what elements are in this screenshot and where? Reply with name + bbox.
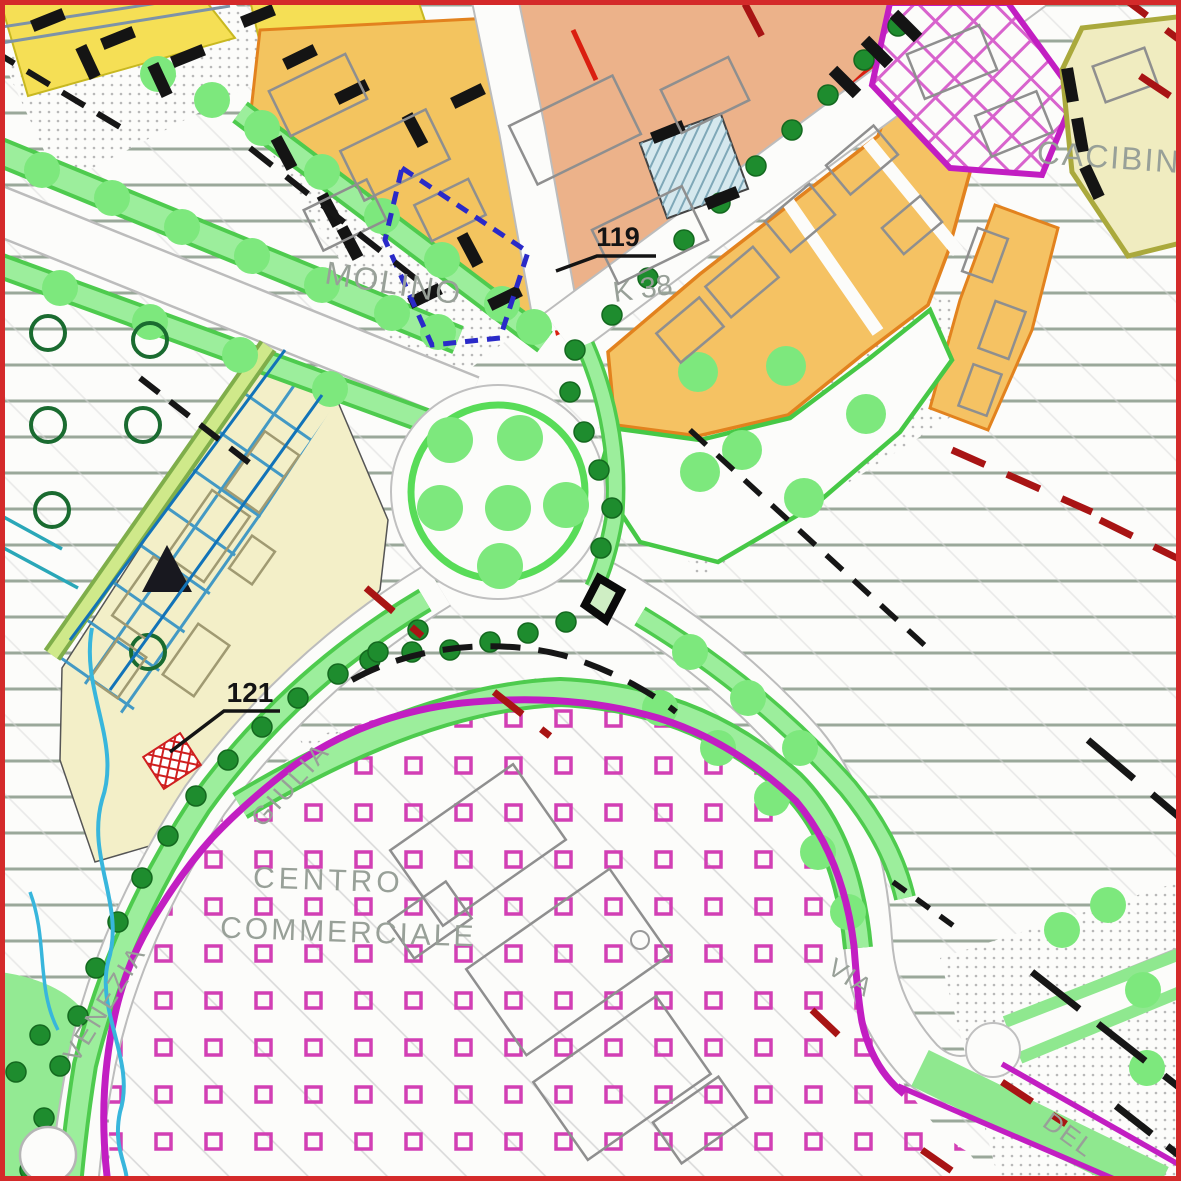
tree-icon (368, 642, 388, 662)
tree-canopy-icon (516, 309, 552, 345)
tree-icon (288, 688, 308, 708)
tree-icon (589, 460, 609, 480)
tree-canopy-icon (1090, 887, 1126, 923)
zoning-map: 119 121 K 38 MOLINO CACIBIN CENTRO COMME… (0, 0, 1181, 1181)
tree-icon (6, 1062, 26, 1082)
tree-canopy-icon (846, 394, 886, 434)
tree-icon (30, 1025, 50, 1045)
tree-canopy-icon (477, 543, 523, 589)
tree-icon (560, 382, 580, 402)
tree-canopy-icon (678, 352, 718, 392)
tree-canopy-icon (417, 485, 463, 531)
tree-canopy-icon (730, 680, 766, 716)
tree-icon (218, 750, 238, 770)
tree-icon (591, 538, 611, 558)
tree-icon (132, 868, 152, 888)
tree-canopy-icon (543, 482, 589, 528)
tree-canopy-icon (42, 270, 78, 306)
tree-canopy-icon (782, 730, 818, 766)
tree-canopy-icon (680, 452, 720, 492)
tree-icon (602, 498, 622, 518)
tree-icon (34, 1108, 54, 1128)
tree-canopy-icon (24, 152, 60, 188)
tree-canopy-icon (222, 337, 258, 373)
tree-canopy-icon (754, 780, 790, 816)
tree-icon (746, 156, 766, 176)
map-canvas: 119 121 K 38 MOLINO CACIBIN CENTRO COMME… (0, 0, 1181, 1181)
tree-canopy-icon (1125, 972, 1161, 1008)
tree-canopy-icon (672, 634, 708, 670)
label-parcel-121: 121 (227, 677, 274, 708)
label-centro: CENTRO (252, 861, 404, 899)
tree-icon (518, 623, 538, 643)
tree-canopy-icon (164, 209, 200, 245)
tree-canopy-icon (234, 238, 270, 274)
tree-canopy-icon (194, 82, 230, 118)
tree-icon (252, 717, 272, 737)
tree-canopy-icon (497, 415, 543, 461)
label-parcel-119: 119 (596, 222, 640, 252)
tree-icon (328, 664, 348, 684)
tree-icon (186, 786, 206, 806)
tree-icon (574, 422, 594, 442)
tree-icon (556, 612, 576, 632)
tree-canopy-icon (427, 417, 473, 463)
tree-canopy-icon (784, 478, 824, 518)
tree-icon (818, 85, 838, 105)
tree-icon (782, 120, 802, 140)
tree-icon (565, 340, 585, 360)
tree-canopy-icon (766, 346, 806, 386)
tree-canopy-icon (94, 180, 130, 216)
tree-canopy-icon (485, 485, 531, 531)
tree-icon (158, 826, 178, 846)
tree-icon (86, 958, 106, 978)
tree-canopy-icon (304, 154, 340, 190)
basin-outline (20, 1127, 76, 1181)
tree-canopy-icon (1044, 912, 1080, 948)
